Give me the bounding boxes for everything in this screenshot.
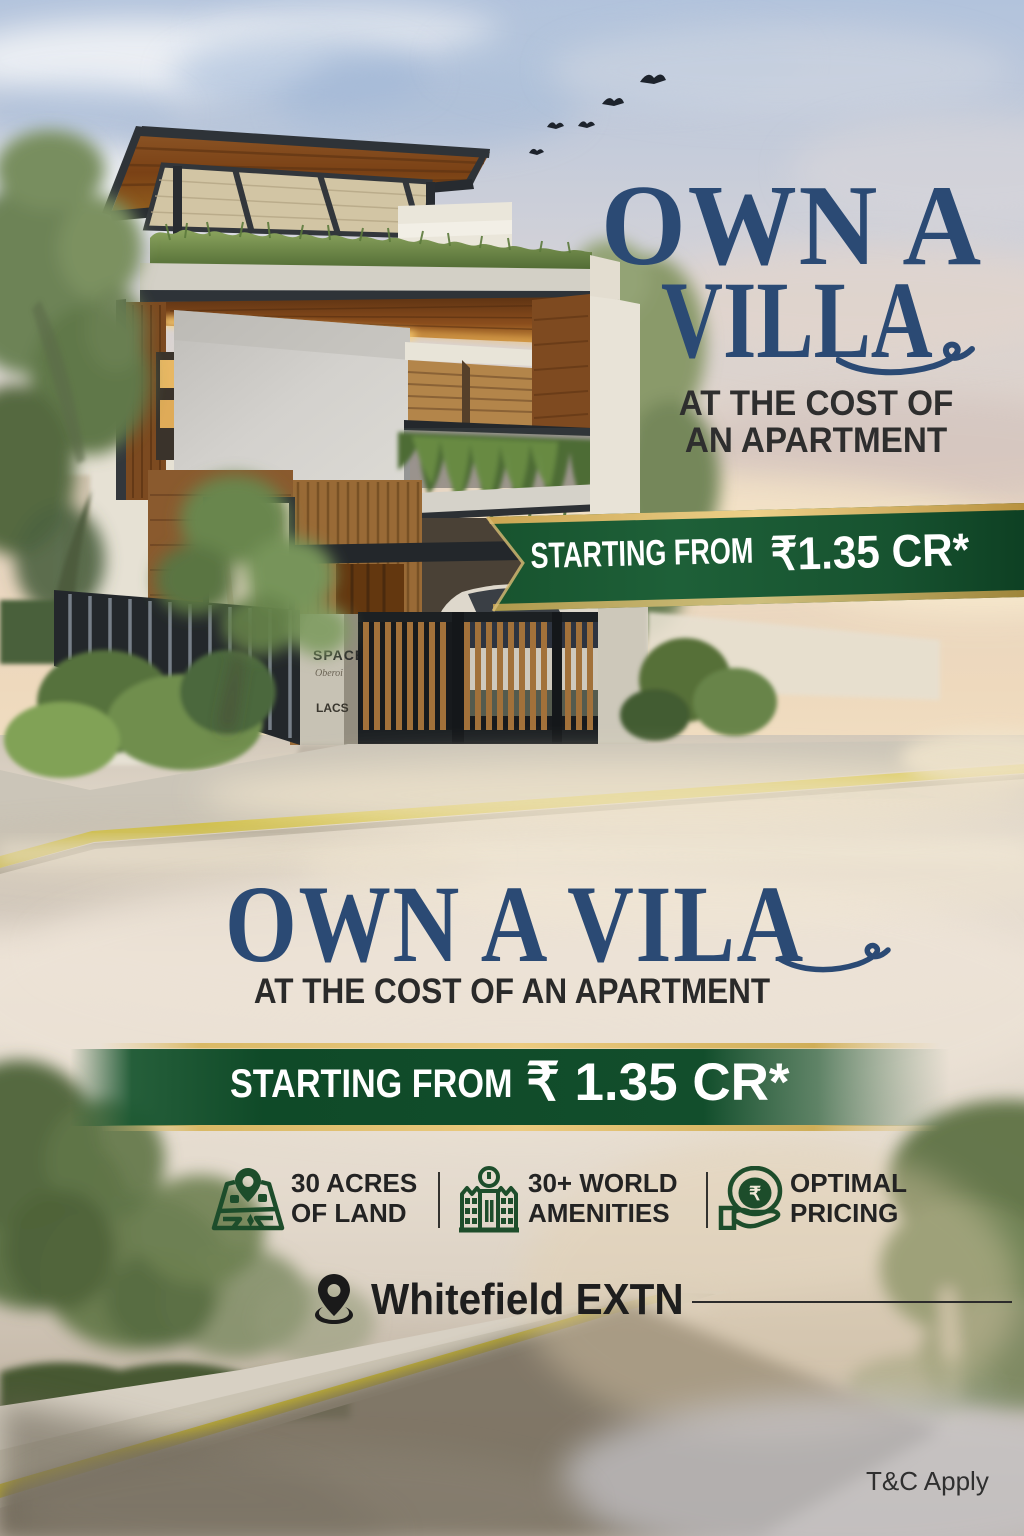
svg-text:₹: ₹ [749,1184,761,1205]
